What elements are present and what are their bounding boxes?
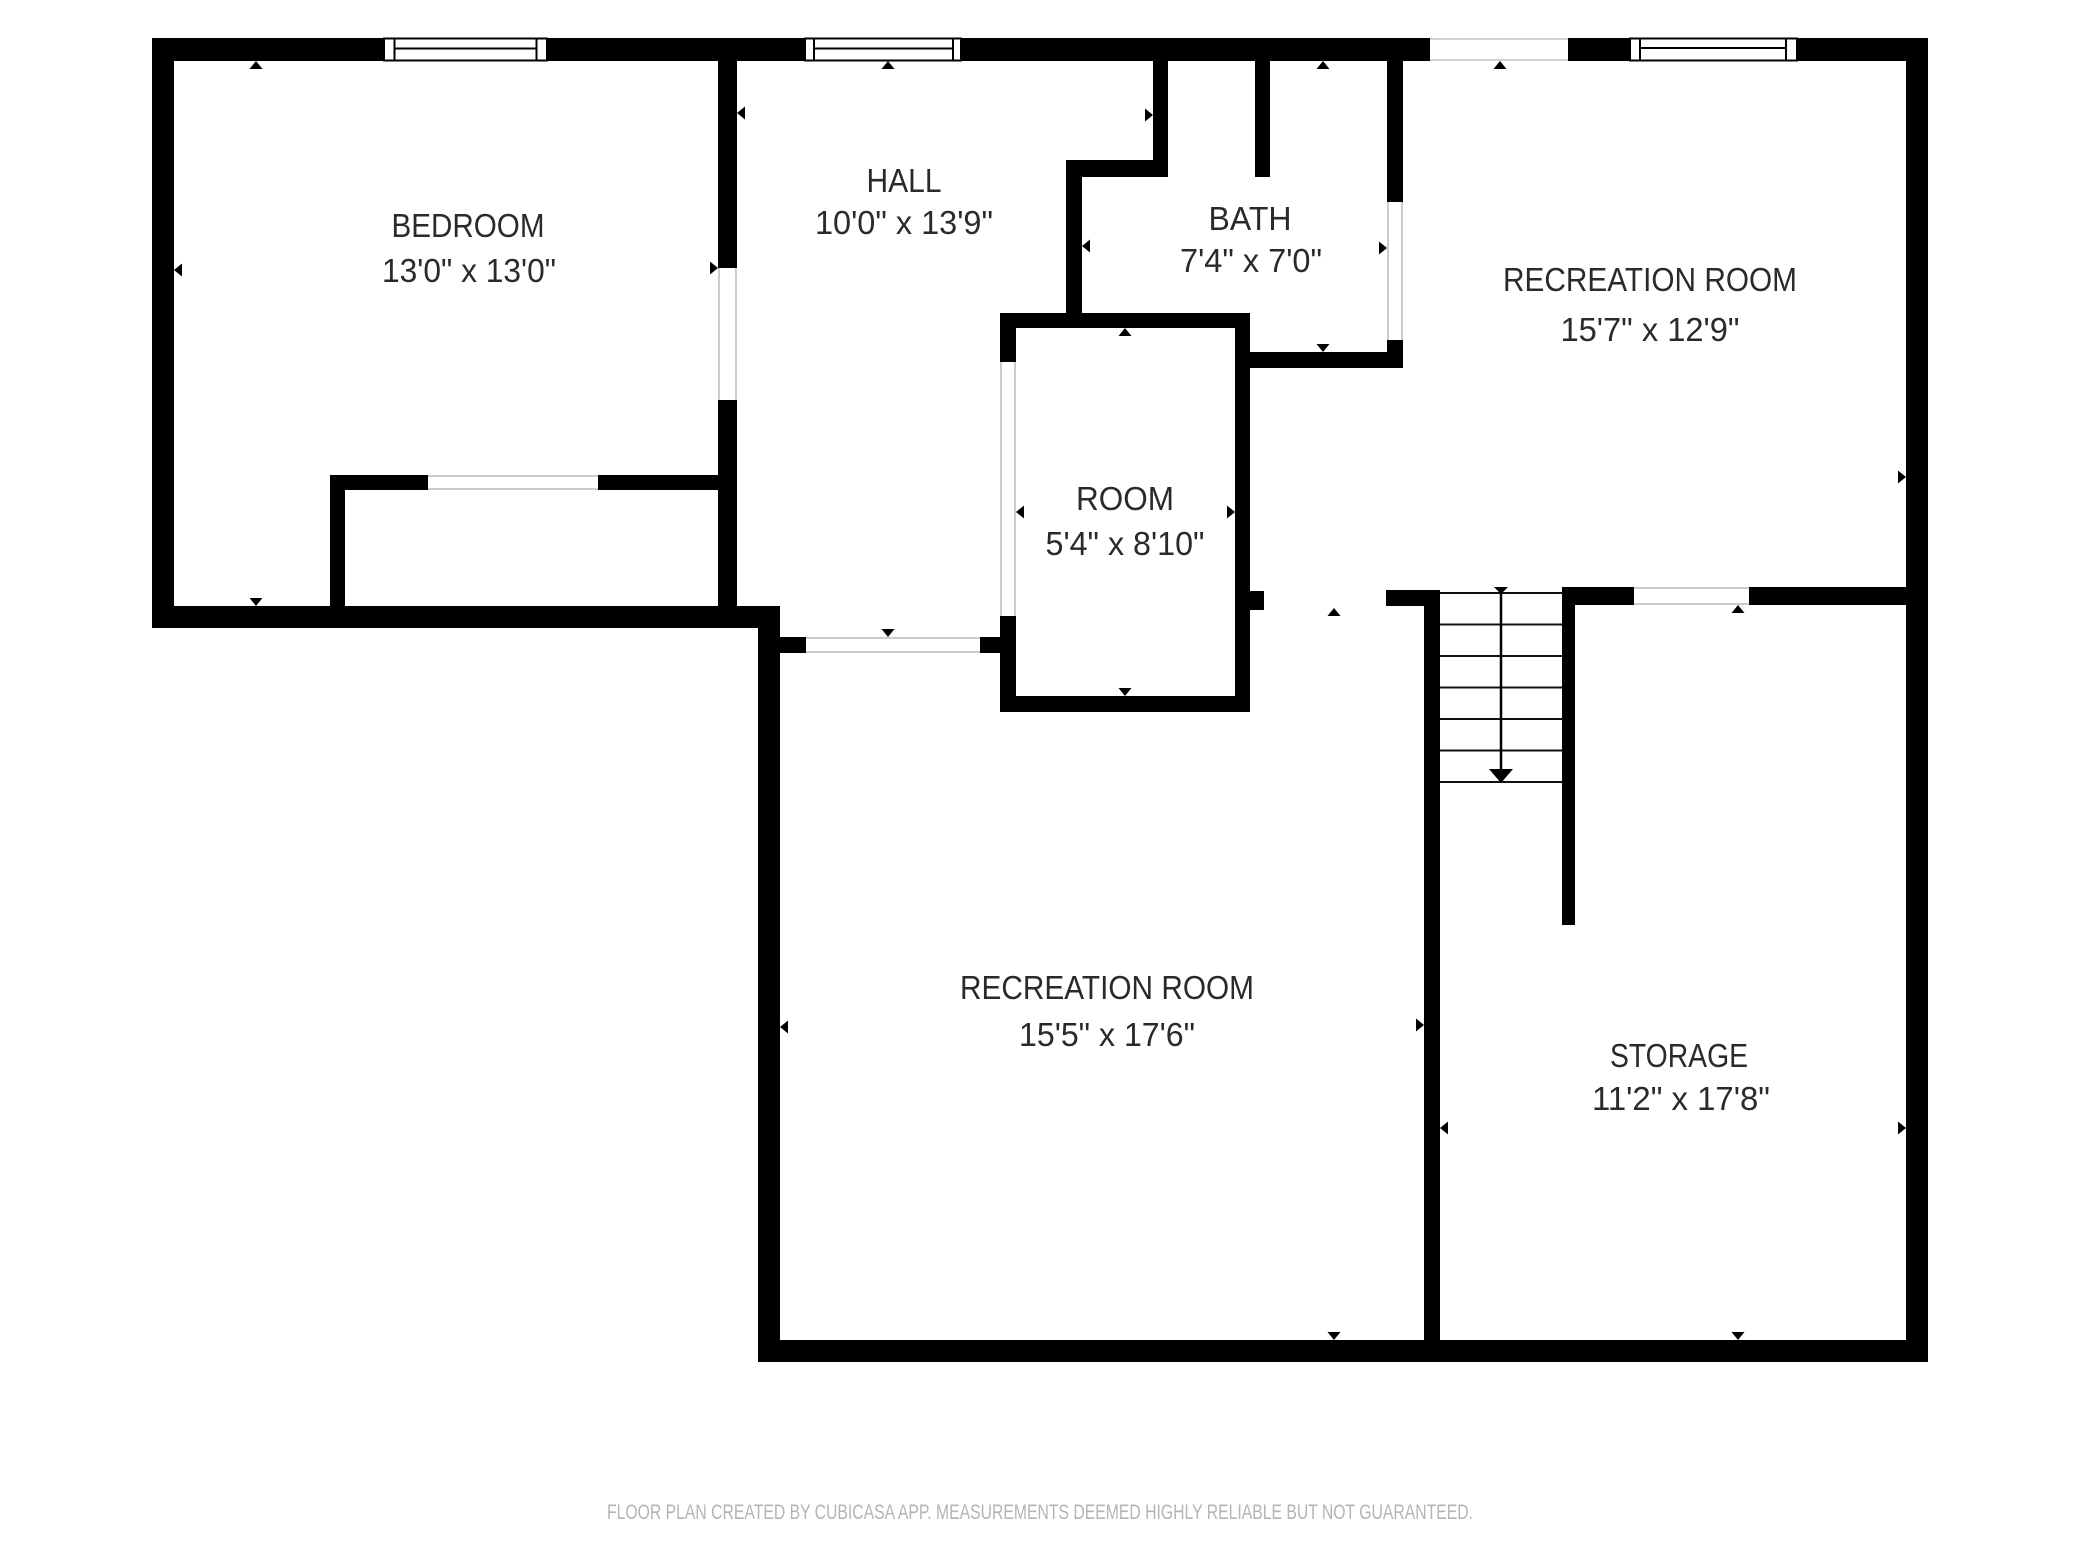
- svg-text:10'0" x 13'9": 10'0" x 13'9": [815, 204, 993, 241]
- svg-text:BEDROOM: BEDROOM: [392, 207, 545, 244]
- svg-text:ROOM: ROOM: [1076, 480, 1174, 517]
- svg-text:7'4" x 7'0": 7'4" x 7'0": [1180, 242, 1322, 279]
- svg-text:13'0" x 13'0": 13'0" x 13'0": [382, 252, 556, 289]
- svg-text:BATH: BATH: [1209, 200, 1292, 237]
- svg-text:RECREATION ROOM: RECREATION ROOM: [960, 969, 1254, 1006]
- svg-text:STORAGE: STORAGE: [1610, 1037, 1748, 1074]
- svg-text:HALL: HALL: [867, 162, 942, 199]
- svg-text:RECREATION ROOM: RECREATION ROOM: [1503, 261, 1797, 298]
- svg-text:11'2" x 17'8": 11'2" x 17'8": [1592, 1080, 1770, 1117]
- svg-text:FLOOR PLAN CREATED BY CUBICASA: FLOOR PLAN CREATED BY CUBICASA APP. MEAS…: [607, 1500, 1473, 1524]
- svg-text:15'5" x 17'6": 15'5" x 17'6": [1019, 1016, 1195, 1053]
- svg-text:5'4" x 8'10": 5'4" x 8'10": [1046, 525, 1205, 562]
- svg-text:15'7" x 12'9": 15'7" x 12'9": [1561, 311, 1740, 348]
